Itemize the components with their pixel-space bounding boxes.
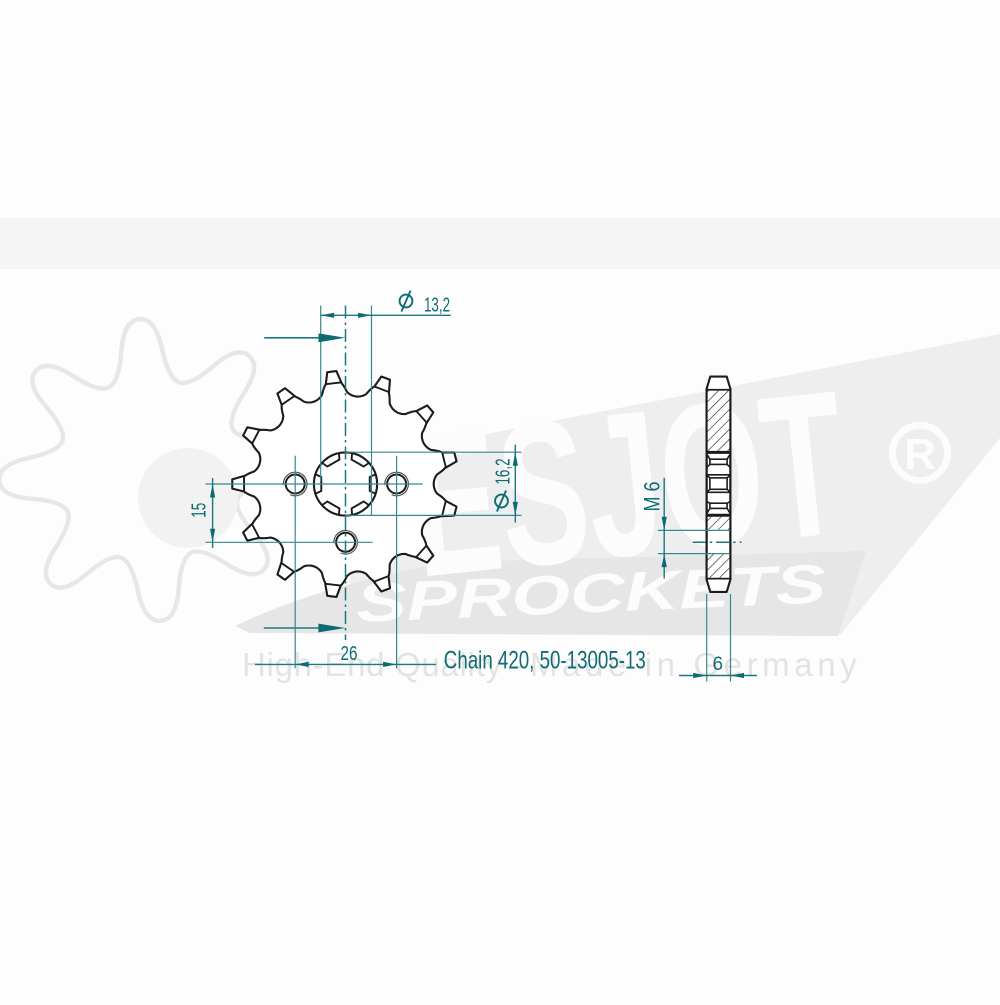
svg-text:Chain 420, 50-13005-13: Chain 420, 50-13005-13 bbox=[444, 647, 646, 675]
svg-text:15: 15 bbox=[189, 503, 211, 518]
svg-text:R: R bbox=[904, 430, 936, 479]
svg-text:26: 26 bbox=[341, 643, 358, 665]
svg-text:13,2: 13,2 bbox=[424, 295, 450, 317]
svg-text:6: 6 bbox=[713, 654, 724, 675]
svg-text:M 6: M 6 bbox=[640, 482, 665, 512]
svg-text:16,2: 16,2 bbox=[493, 459, 515, 485]
